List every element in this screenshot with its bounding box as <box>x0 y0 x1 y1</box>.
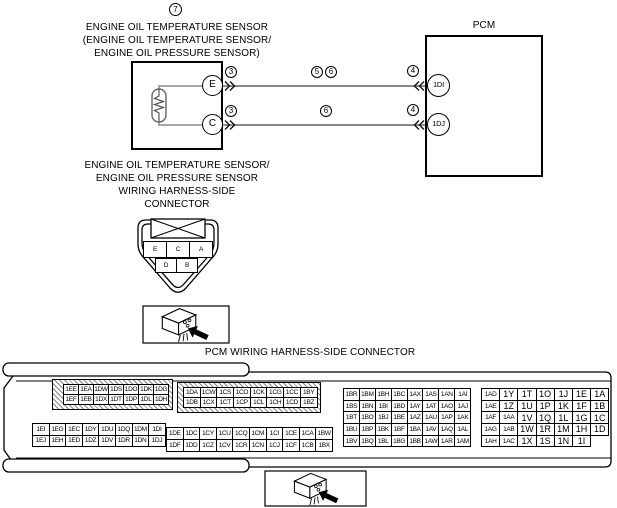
pin-1AU: 1AU <box>423 412 439 424</box>
pin-1BR: 1BR <box>344 389 360 401</box>
sensor-title: ENGINE OIL TEMPERATURE SENSOR (ENGINE OI… <box>46 21 308 60</box>
pin-1CG: 1CG <box>267 388 284 398</box>
pin-1CI: 1CI <box>266 428 283 440</box>
wire-marker-3: 3 <box>225 105 237 117</box>
pcm-pin-group-a: 1EE1EA1DW1DS1DO1DK1DG1EF1EB1DX1DT1DP1DL1… <box>63 384 169 405</box>
pin-1DW: 1DW <box>94 385 109 395</box>
pin-1BN: 1BN <box>359 400 375 412</box>
pin-1BV: 1BV <box>344 435 360 447</box>
pin-1J: 1J <box>554 389 572 401</box>
pin-1CA: 1CA <box>299 428 316 440</box>
pin-1DF: 1DF <box>167 440 184 452</box>
pin-1CR: 1CR <box>233 440 250 452</box>
pin-1CS: 1CS <box>217 388 234 398</box>
pin-1X: 1X <box>518 435 536 447</box>
pin-1CF: 1CF <box>283 440 300 452</box>
pin-1CB: 1CB <box>299 440 316 452</box>
sensor-connector-pin-row-bottom: DB <box>155 258 198 273</box>
pin-1CO: 1CO <box>234 388 251 398</box>
pin-1K: 1K <box>554 400 572 412</box>
pin-1BJ: 1BJ <box>375 412 391 424</box>
pin-1CX: 1CX <box>200 398 217 408</box>
pin-1M: 1M <box>554 424 572 436</box>
pin-1BL: 1BL <box>375 435 391 447</box>
pin-1BB: 1BB <box>407 435 423 447</box>
pin-1AH: 1AH <box>482 435 500 447</box>
pin-1AV: 1AV <box>423 424 439 436</box>
pcm-pin-group-d: 1DE1DC1CY1CU1CQ1CM1CI1CE1CA1BW1DF1DD1CZ1… <box>166 427 333 452</box>
pin-1DE: 1DE <box>167 428 184 440</box>
pin-1DV: 1DV <box>99 435 116 447</box>
pin-1AZ: 1AZ <box>407 412 423 424</box>
pin-1F: 1F <box>572 400 590 412</box>
callout-7-badge: 7 <box>169 3 182 16</box>
pin-1AG: 1AG <box>482 424 500 436</box>
pin-1DS: 1DS <box>109 385 124 395</box>
sensor-connector-pin-row-top: ECA <box>143 241 213 258</box>
pin-1AO: 1AO <box>439 400 455 412</box>
pin-1AN: 1AN <box>439 389 455 401</box>
pin-1BM: 1BM <box>359 389 375 401</box>
pin-1AB: 1AB <box>500 424 518 436</box>
pin-1DR: 1DR <box>115 435 132 447</box>
terminal-1di: 1DI <box>427 74 450 97</box>
pin-1O: 1O <box>536 389 554 401</box>
pin-1BH: 1BH <box>375 389 391 401</box>
pin-1S: 1S <box>536 435 554 447</box>
pin-1H: 1H <box>572 424 590 436</box>
pin-B: B <box>177 259 198 273</box>
pcm-pin-group-e: 1BR1BM1BH1BC1AX1AS1AN1AI1BS1BN1BI1BD1AY1… <box>343 388 471 447</box>
pin-1E: 1E <box>572 389 590 401</box>
wire-marker-4: 4 <box>407 104 419 116</box>
pin-1AM: 1AM <box>455 435 471 447</box>
pin-1CU: 1CU <box>216 428 233 440</box>
pin-1ED: 1ED <box>66 435 83 447</box>
pin-1AQ: 1AQ <box>439 424 455 436</box>
pin-1AI: 1AI <box>455 389 471 401</box>
pin-1AC: 1AC <box>500 435 518 447</box>
pin-1BY: 1BY <box>300 388 317 398</box>
wire-marker-3: 3 <box>225 66 237 78</box>
pin-1DH: 1DH <box>154 395 169 405</box>
pcm-connector-title: PCM WIRING HARNESS-SIDE CONNECTOR <box>155 346 465 359</box>
pcm-label: PCM <box>454 19 514 32</box>
pcm-box <box>425 35 543 177</box>
pin-1BX: 1BX <box>316 440 333 452</box>
pin-1G: 1G <box>572 412 590 424</box>
pin-1BP: 1BP <box>359 424 375 436</box>
pin-1BS: 1BS <box>344 400 360 412</box>
pin-1AD: 1AD <box>482 389 500 401</box>
pin-1DO: 1DO <box>124 385 139 395</box>
pin-1EE: 1EE <box>64 385 79 395</box>
pin-1AT: 1AT <box>423 400 439 412</box>
pin-1DA: 1DA <box>184 388 201 398</box>
pin-1CW: 1CW <box>200 388 217 398</box>
pin-1BT: 1BT <box>344 412 360 424</box>
pin-1CZ: 1CZ <box>200 440 217 452</box>
pin-1BA: 1BA <box>407 424 423 436</box>
pin-1AK: 1AK <box>455 412 471 424</box>
pin-1DY: 1DY <box>82 424 99 436</box>
pin-C: C <box>167 242 190 258</box>
pin-1DQ: 1DQ <box>115 424 132 436</box>
pin-1BW: 1BW <box>316 428 333 440</box>
pin-1AR: 1AR <box>439 435 455 447</box>
pin-1Q: 1Q <box>536 412 554 424</box>
pin-1AS: 1AS <box>423 389 439 401</box>
pin-1DT: 1DT <box>109 395 124 405</box>
pin-1CL: 1CL <box>250 398 267 408</box>
pin-1EH: 1EH <box>49 435 66 447</box>
pin-1R: 1R <box>536 424 554 436</box>
housing-rail-top <box>3 363 249 376</box>
pin-1U: 1U <box>518 400 536 412</box>
pin-1CQ: 1CQ <box>233 428 250 440</box>
wiring-diagram-page: 7 ENGINE OIL TEMPERATURE SENSOR (ENGINE … <box>0 0 617 508</box>
wire-marker-4: 4 <box>407 65 419 77</box>
wire-marker-5: 5 <box>311 66 323 78</box>
pin-1EB: 1EB <box>79 395 94 405</box>
pin-1CY: 1CY <box>200 428 217 440</box>
pin-1BF: 1BF <box>391 424 407 436</box>
pin-1DL: 1DL <box>139 395 154 405</box>
pin-1AW: 1AW <box>423 435 439 447</box>
pin-1AF: 1AF <box>482 412 500 424</box>
pin-1Z: 1Z <box>500 400 518 412</box>
pin-1BK: 1BK <box>375 424 391 436</box>
pin-1W: 1W <box>518 424 536 436</box>
pin-E: E <box>144 242 167 258</box>
pin-1EA: 1EA <box>79 385 94 395</box>
pin-1CM: 1CM <box>249 428 266 440</box>
pin-D: D <box>156 259 177 273</box>
terminal-1dj: 1DJ <box>427 113 450 136</box>
pin-1DP: 1DP <box>124 395 139 405</box>
pin-1AA: 1AA <box>500 412 518 424</box>
pin-1BU: 1BU <box>344 424 360 436</box>
pin-1Y: 1Y <box>500 389 518 401</box>
pin-1T: 1T <box>518 389 536 401</box>
pin-1A: 1A <box>591 389 609 401</box>
pin-1CP: 1CP <box>234 398 251 408</box>
pin-1N: 1N <box>554 435 572 447</box>
pin-1BI: 1BI <box>375 400 391 412</box>
pcm-pin-group-b: 1EI1EG1EC1DY1DU1DQ1DM1DI1EJ1EH1ED1DZ1DV1… <box>32 423 166 447</box>
pin-1C: 1C <box>591 412 609 424</box>
pin-1CV: 1CV <box>216 440 233 452</box>
pin-1CC: 1CC <box>284 388 301 398</box>
pcm-pin-group-f: 1AD1Y1T1O1J1E1A1AE1Z1U1P1K1F1B1AF1AA1V1Q… <box>481 388 609 447</box>
wire-marker-6: 6 <box>320 105 332 117</box>
pin-1P: 1P <box>536 400 554 412</box>
pin-1AL: 1AL <box>455 424 471 436</box>
pin-1CE: 1CE <box>283 428 300 440</box>
pin-1I: 1I <box>572 435 590 447</box>
pin-1EG: 1EG <box>49 424 66 436</box>
pin-1EF: 1EF <box>64 395 79 405</box>
pin-1DJ: 1DJ <box>149 435 166 447</box>
pin-1BO: 1BO <box>359 412 375 424</box>
pin-1DN: 1DN <box>132 435 149 447</box>
pin-1CK: 1CK <box>250 388 267 398</box>
pin-1D: 1D <box>591 424 609 436</box>
pin-1DD: 1DD <box>183 440 200 452</box>
pin-1CD: 1CD <box>284 398 301 408</box>
pin-1AE: 1AE <box>482 400 500 412</box>
pin-1BZ: 1BZ <box>300 398 317 408</box>
pin-1DU: 1DU <box>99 424 116 436</box>
pin-1BQ: 1BQ <box>359 435 375 447</box>
pin-1DB: 1DB <box>184 398 201 408</box>
pin-1EI: 1EI <box>33 424 50 436</box>
pin-1AY: 1AY <box>407 400 423 412</box>
pin-1CH: 1CH <box>267 398 284 408</box>
pin-1EJ: 1EJ <box>33 435 50 447</box>
pin-1BD: 1BD <box>391 400 407 412</box>
pin-1DX: 1DX <box>94 395 109 405</box>
pin-1AJ: 1AJ <box>455 400 471 412</box>
pin-1DM: 1DM <box>132 424 149 436</box>
pcm-pin-group-c: 1DA1CW1CS1CO1CK1CG1CC1BY1DB1CX1CT1CP1CL1… <box>183 387 318 408</box>
pin-1EC: 1EC <box>66 424 83 436</box>
pin-1DZ: 1DZ <box>82 435 99 447</box>
pin-1CJ: 1CJ <box>266 440 283 452</box>
pin-1AX: 1AX <box>407 389 423 401</box>
pin-1CN: 1CN <box>249 440 266 452</box>
pin-1DG: 1DG <box>154 385 169 395</box>
pin-1L: 1L <box>554 412 572 424</box>
pin-1DC: 1DC <box>183 428 200 440</box>
pin-1DK: 1DK <box>139 385 154 395</box>
housing-rail-bottom <box>3 459 249 472</box>
pin-1DI: 1DI <box>149 424 166 436</box>
terminal-e: E <box>202 75 223 96</box>
pin-1BE: 1BE <box>391 412 407 424</box>
pin-1AP: 1AP <box>439 412 455 424</box>
pin-1BG: 1BG <box>391 435 407 447</box>
pin-1V: 1V <box>518 412 536 424</box>
pin-1BC: 1BC <box>391 389 407 401</box>
pin-A: A <box>190 242 213 258</box>
sensor-connector-title: ENGINE OIL TEMPERATURE SENSOR/ ENGINE OI… <box>46 159 308 211</box>
pin-1B: 1B <box>591 400 609 412</box>
terminal-c: C <box>202 114 223 135</box>
wire-marker-6: 6 <box>325 66 337 78</box>
pin-1CT: 1CT <box>217 398 234 408</box>
